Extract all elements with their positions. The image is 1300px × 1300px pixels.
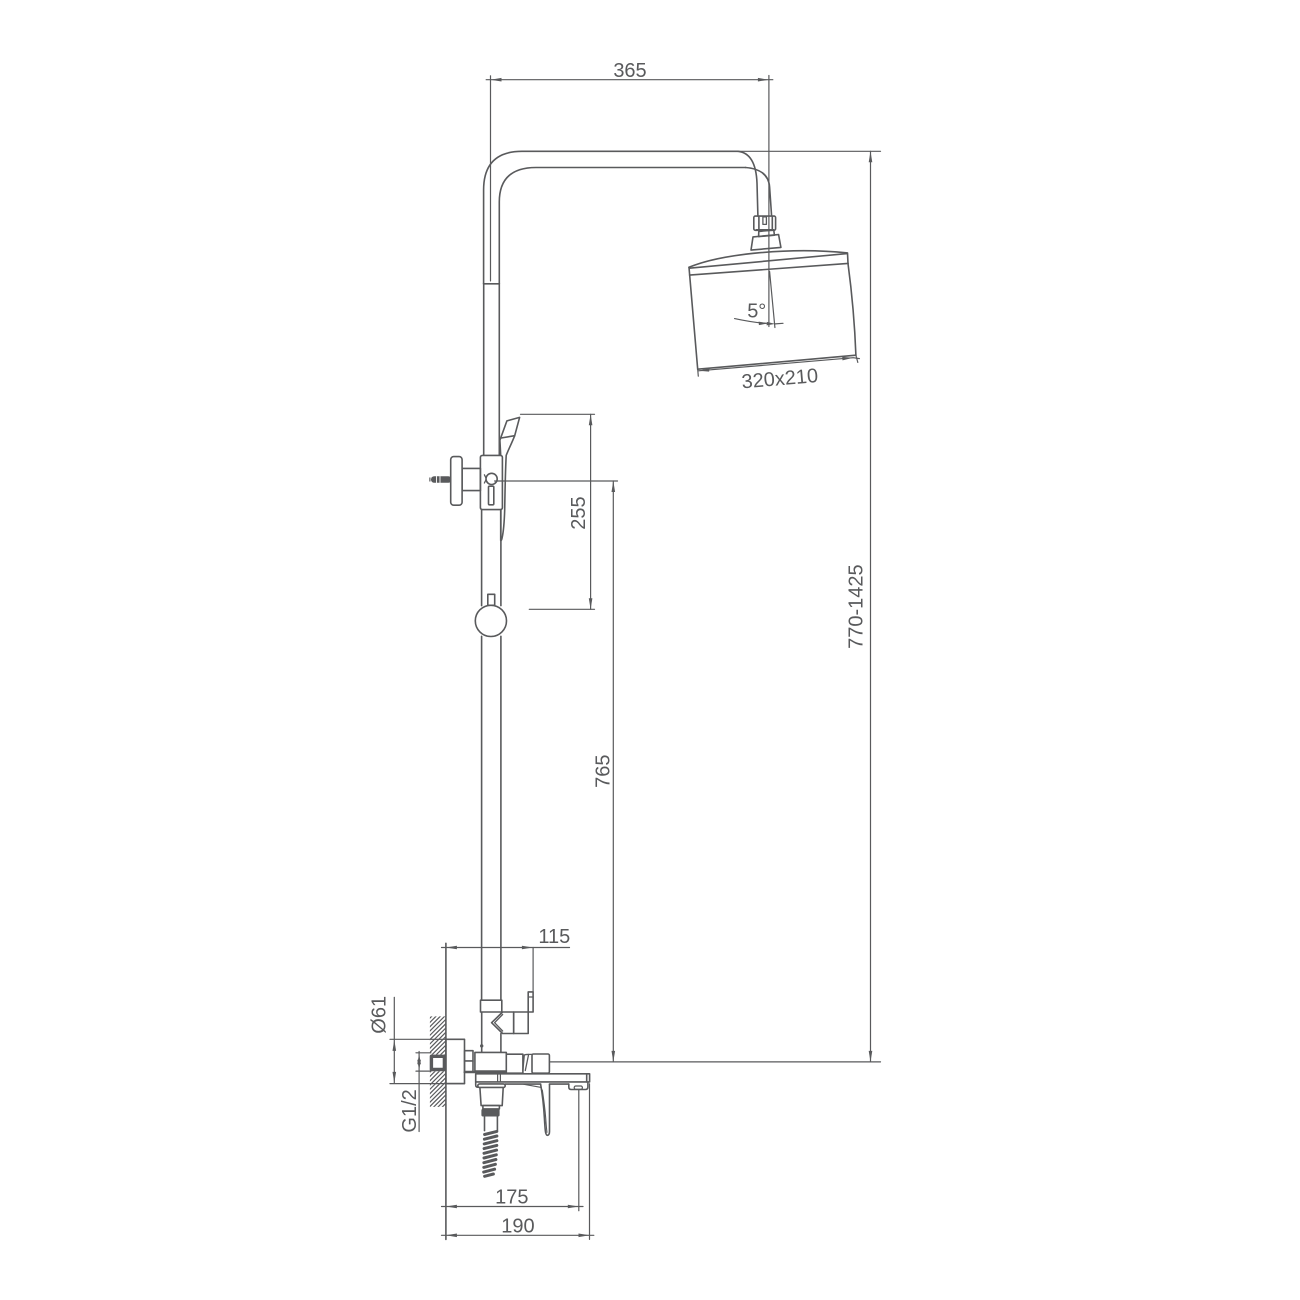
svg-text:255: 255 xyxy=(568,496,590,529)
svg-text:175: 175 xyxy=(495,1187,528,1209)
svg-text:5°: 5° xyxy=(747,301,766,323)
svg-text:765: 765 xyxy=(593,755,615,788)
svg-text:Ø61: Ø61 xyxy=(369,996,391,1034)
svg-text:G1/2: G1/2 xyxy=(399,1089,421,1132)
svg-text:770-1425: 770-1425 xyxy=(846,564,868,649)
svg-text:115: 115 xyxy=(538,926,570,948)
svg-text:190: 190 xyxy=(501,1215,534,1237)
svg-text:365: 365 xyxy=(613,60,646,82)
